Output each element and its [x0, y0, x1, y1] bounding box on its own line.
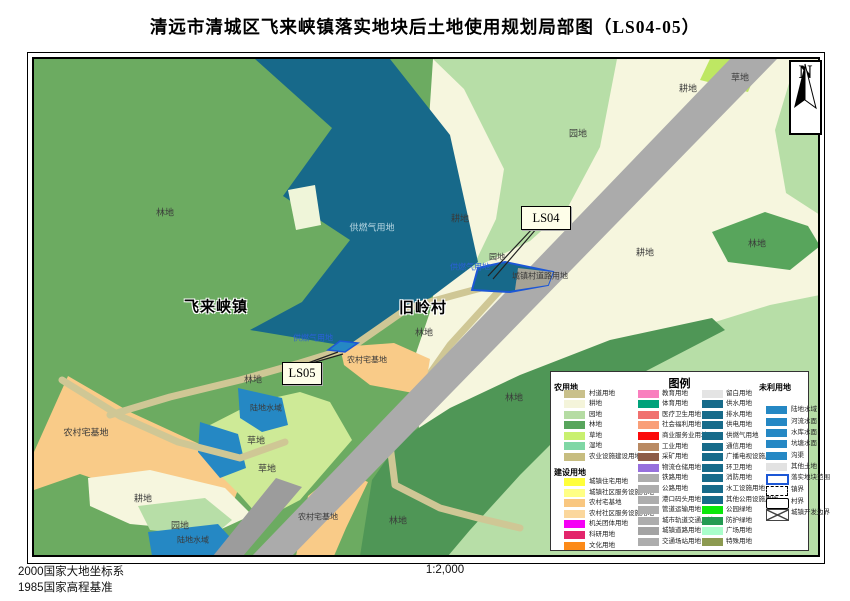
legend-swatch: [766, 418, 787, 426]
map-canvas: 林地供燃气用地耕地草地园地耕地园地供燃气用地城镇村道路用地林地耕地飞来峡镇旧岭村…: [32, 57, 820, 557]
legend-label: 陆地水域: [791, 406, 817, 414]
legend-label: 公路用地: [662, 485, 688, 493]
legend-swatch: [702, 517, 723, 525]
legend-label: 城镇开发边界: [791, 509, 830, 517]
legend-swatch: [564, 510, 585, 518]
map-label: 旧岭村: [399, 297, 447, 318]
legend-label: 留白用地: [726, 390, 752, 398]
legend-swatch: [638, 517, 659, 525]
legend-label: 机关团体用地: [589, 520, 628, 528]
legend-label: 林地: [589, 421, 602, 429]
legend-label: 交通场站用地: [662, 538, 701, 546]
map-scale: 1:2,000: [410, 564, 480, 576]
legend-swatch: [638, 400, 659, 408]
legend-label: 沟渠: [791, 452, 804, 460]
legend-swatch: [564, 478, 585, 486]
map-label: 供燃气用地: [450, 262, 490, 273]
legend-swatch: [702, 411, 723, 419]
legend-swatch: [564, 400, 585, 408]
legend-swatch: [702, 506, 723, 514]
legend-label: 教育用地: [662, 390, 688, 398]
legend-swatch: [702, 400, 723, 408]
legend-swatch: [564, 442, 585, 450]
map-label: 陆地水域: [177, 535, 209, 546]
legend-swatch: [638, 496, 659, 504]
legend-label: 体育用地: [662, 400, 688, 408]
legend-swatch: [702, 390, 723, 398]
north-arrow: N: [789, 60, 822, 135]
map-label: 林地: [244, 373, 262, 386]
map-label: 农村宅基地: [298, 512, 338, 523]
legend-swatch: [702, 443, 723, 451]
map-label: 农村宅基地: [347, 355, 387, 366]
legend-label: 通信用地: [726, 443, 752, 451]
legend-label: 工业用地: [662, 443, 688, 451]
legend-label: 村界: [791, 498, 804, 506]
map-label: 耕地: [451, 212, 469, 225]
legend-swatch: [638, 538, 659, 546]
legend-swatch: [564, 411, 585, 419]
legend-swatch: [702, 474, 723, 482]
legend-group-header: 未利用地: [759, 382, 791, 393]
legend-swatch: [702, 432, 723, 440]
legend-swatch: [766, 440, 787, 448]
legend-label: 农业设施建设用地: [589, 453, 641, 461]
map-label: 飞来峡镇: [184, 296, 248, 317]
legend-label: 其他土地: [791, 463, 817, 471]
legend-label: 铁路用地: [662, 474, 688, 482]
page-title: 清远市清城区飞来峡镇落实地块后土地使用规划局部图（LS04-05）: [0, 14, 850, 39]
legend-swatch: [702, 496, 723, 504]
ls04-callout: LS04: [521, 206, 571, 230]
map-label: 城镇村道路用地: [512, 271, 568, 282]
legend-label: 落实地块范围: [791, 474, 830, 482]
map-label: 林地: [415, 326, 433, 339]
legend-swatch: [638, 432, 659, 440]
legend-swatch: [564, 453, 585, 461]
map-label: 园地: [489, 252, 505, 263]
legend-swatch: [638, 506, 659, 514]
legend-label: 耕地: [589, 400, 602, 408]
legend-label: 社会福利用地: [662, 421, 701, 429]
legend-label: 农村宅基地: [589, 499, 622, 507]
planning-map-page: 清远市清城区飞来峡镇落实地块后土地使用规划局部图（LS04-05）: [0, 0, 850, 601]
legend-swatch: [564, 499, 585, 507]
legend-label: 公园绿地: [726, 506, 752, 514]
legend-swatch: [564, 542, 585, 550]
legend-swatch: [564, 531, 585, 539]
legend-label: 广场用地: [726, 527, 752, 535]
legend-label: 文化用地: [589, 542, 615, 550]
legend-label: 供水用地: [726, 400, 752, 408]
legend-label: 村道用地: [589, 390, 615, 398]
datum-line-1: 2000国家大地坐标系: [18, 563, 124, 579]
legend-swatch: [638, 421, 659, 429]
legend-swatch: [638, 411, 659, 419]
legend-swatch: [702, 485, 723, 493]
legend-label: 管道运输用地: [662, 506, 701, 514]
map-label: 农村宅基地: [63, 426, 108, 439]
legend-label: 园地: [589, 411, 602, 419]
legend-swatch: [766, 429, 787, 437]
legend-label: 科研用地: [589, 531, 615, 539]
legend-label: 湿地: [589, 442, 602, 450]
legend-swatch: [638, 464, 659, 472]
legend-swatch: [766, 498, 789, 509]
legend-label: 镇界: [791, 486, 804, 494]
map-label: 草地: [258, 462, 276, 475]
north-arrow-icon: [791, 62, 819, 110]
legend-swatch: [638, 443, 659, 451]
map-label: 供燃气用地: [349, 221, 394, 234]
legend-swatch: [638, 474, 659, 482]
legend-swatch: [702, 538, 723, 546]
map-label: 耕地: [636, 246, 654, 259]
legend-label: 坑塘水面: [791, 440, 817, 448]
legend-label: 城镇住宅用地: [589, 478, 628, 486]
map-label: 林地: [505, 391, 523, 404]
legend-group-header: 建设用地: [554, 467, 586, 478]
legend-swatch: [564, 520, 585, 528]
legend-label: 草地: [589, 432, 602, 440]
legend-swatch: [766, 463, 787, 471]
legend-label: 医疗卫生用地: [662, 411, 701, 419]
legend-swatch: [564, 421, 585, 429]
legend-box: 图例 农用地村道用地耕地园地林地草地湿地农业设施建设用地建设用地城镇住宅用地城镇…: [550, 371, 809, 551]
map-label: 园地: [569, 127, 587, 140]
legend-swatch: [638, 485, 659, 493]
legend-swatch: [766, 406, 787, 414]
legend-swatch: [766, 486, 788, 496]
legend-label: 城镇道路用地: [662, 527, 701, 535]
legend-swatch: [702, 464, 723, 472]
legend-swatch: [564, 390, 585, 398]
legend-swatch: [564, 432, 585, 440]
legend-label: 供电用地: [726, 421, 752, 429]
map-label: 草地: [731, 71, 749, 84]
map-label: 草地: [247, 434, 265, 447]
map-label: 林地: [156, 206, 174, 219]
legend-label: 特殊用地: [726, 538, 752, 546]
legend-swatch: [638, 453, 659, 461]
legend-swatch: [702, 453, 723, 461]
legend-label: 港口码头用地: [662, 496, 701, 504]
legend-swatch: [638, 390, 659, 398]
legend-swatch: [766, 474, 789, 485]
legend-swatch: [766, 509, 789, 521]
legend-label: 物流仓储用地: [662, 464, 701, 472]
legend-label: 水工设施用地: [726, 485, 765, 493]
legend-label: 防护绿地: [726, 517, 752, 525]
legend-swatch: [766, 452, 787, 460]
ls05-callout: LS05: [282, 362, 322, 385]
legend-label: 环卫用地: [726, 464, 752, 472]
map-label: 林地: [748, 237, 766, 250]
legend-swatch: [564, 489, 585, 497]
map-label: 供燃气用地: [293, 333, 333, 344]
legend-swatch: [638, 527, 659, 535]
legend-label: 采矿用地: [662, 453, 688, 461]
map-label: 耕地: [679, 82, 697, 95]
map-label: 陆地水域: [250, 403, 282, 414]
map-label: 耕地: [134, 492, 152, 505]
map-label: 林地: [389, 514, 407, 527]
legend-label: 水库水面: [791, 429, 817, 437]
legend-swatch: [702, 527, 723, 535]
legend-label: 河流水面: [791, 418, 817, 426]
legend-label: 排水用地: [726, 411, 752, 419]
legend-label: 供燃气用地: [726, 432, 759, 440]
map-label: 园地: [171, 519, 189, 532]
legend-label: 消防用地: [726, 474, 752, 482]
datum-line-2: 1985国家高程基准: [18, 579, 113, 595]
legend-label: 商业服务业用地: [662, 432, 708, 440]
legend-swatch: [702, 421, 723, 429]
